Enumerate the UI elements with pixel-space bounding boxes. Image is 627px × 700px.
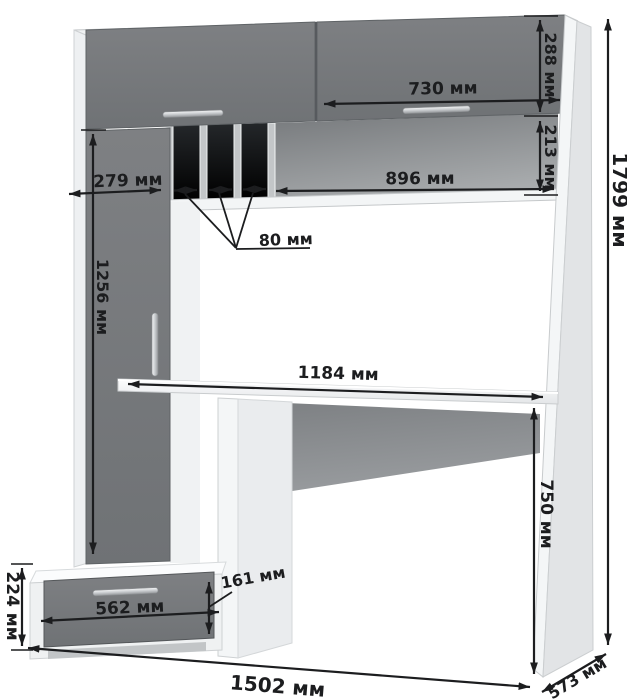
cd-slot-recess	[241, 123, 268, 198]
cd-slot-divider	[200, 125, 207, 199]
dimension-label-niche-height: 213 мм	[541, 124, 560, 189]
dimension-label-desktop-length: 1184 мм	[297, 363, 379, 385]
dimension-drawer-unit-height: 224 мм	[2, 564, 33, 650]
dimension-label-top-door-height: 288 мм	[541, 32, 560, 97]
dimension-label-drawer-unit-height: 224 мм	[2, 571, 22, 640]
dimension-label-left-column-width: 279 мм	[93, 170, 163, 192]
dimension-label-drawer-width: 562 мм	[95, 597, 165, 620]
furniture-drawing	[30, 15, 593, 677]
top-right-door	[317, 15, 565, 121]
cd-slot-divider	[268, 123, 275, 197]
desk-dimension-diagram: 288 мм 213 мм 730 мм 896 мм 279 мм	[0, 0, 627, 700]
cd-slot-divider	[234, 124, 241, 198]
diagram-canvas: 288 мм 213 мм 730 мм 896 мм 279 мм	[0, 0, 627, 700]
cd-slot-recess	[207, 124, 234, 199]
tall-door-handle	[152, 313, 158, 376]
dimension-label-left-door-height: 1256 мм	[93, 259, 112, 335]
pedestal-side-face	[238, 399, 292, 658]
dimension-label-top-door-width: 730 мм	[408, 78, 478, 99]
dimension-total-height: 1799 мм	[608, 19, 627, 645]
dimension-label-desk-height: 750 мм	[536, 479, 556, 548]
dimension-label-total-width: 1502 мм	[229, 670, 326, 700]
cd-slot-recess	[173, 125, 200, 200]
dimension-label-total-height: 1799 мм	[608, 152, 627, 247]
dimension-label-niche-width: 896 мм	[385, 169, 454, 190]
dimension-label-slot-width: 80 мм	[258, 229, 313, 250]
